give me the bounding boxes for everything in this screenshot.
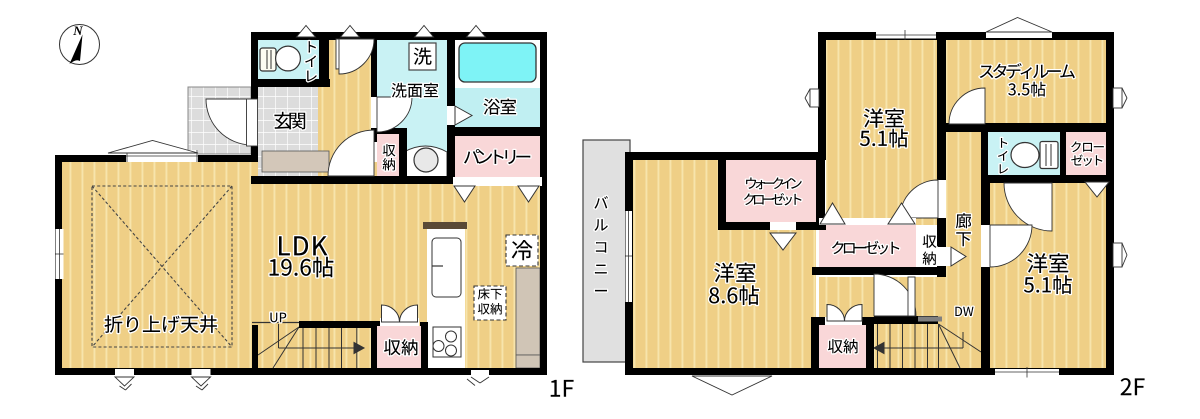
svg-text:N: N xyxy=(72,23,83,38)
